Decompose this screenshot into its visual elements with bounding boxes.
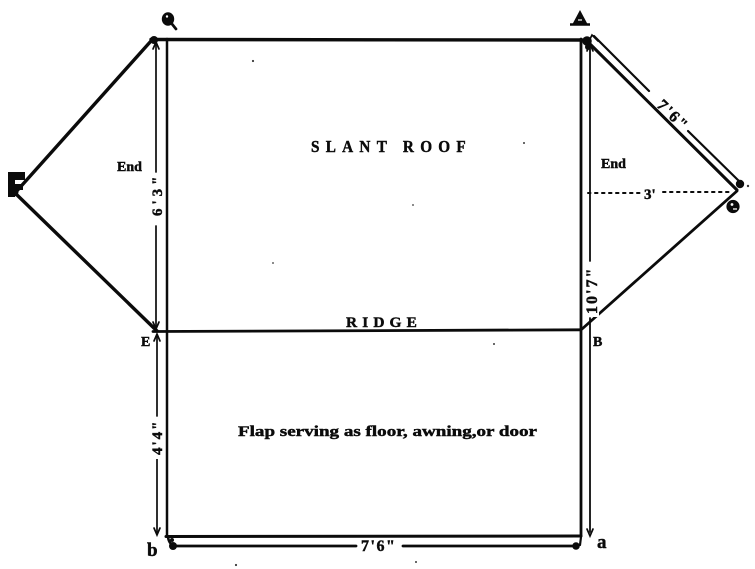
svg-text:7'6": 7'6" [361, 538, 396, 555]
svg-text:E: E [141, 335, 150, 350]
svg-text:Flap serving as floor, awning,: Flap serving as floor, awning,or door [238, 424, 537, 440]
svg-text:4'4": 4'4" [150, 420, 166, 456]
svg-text:b: b [147, 540, 158, 561]
svg-text:B: B [593, 335, 602, 350]
svg-text:10'7": 10'7" [584, 267, 601, 314]
svg-text:3': 3' [644, 187, 656, 203]
svg-text:End: End [117, 160, 142, 175]
svg-text:End: End [601, 157, 626, 172]
svg-text:RIDGE: RIDGE [346, 315, 422, 331]
svg-text:6'3": 6'3" [150, 173, 166, 217]
svg-text:SLANT ROOF: SLANT ROOF [311, 137, 472, 156]
svg-text:a: a [597, 532, 607, 553]
